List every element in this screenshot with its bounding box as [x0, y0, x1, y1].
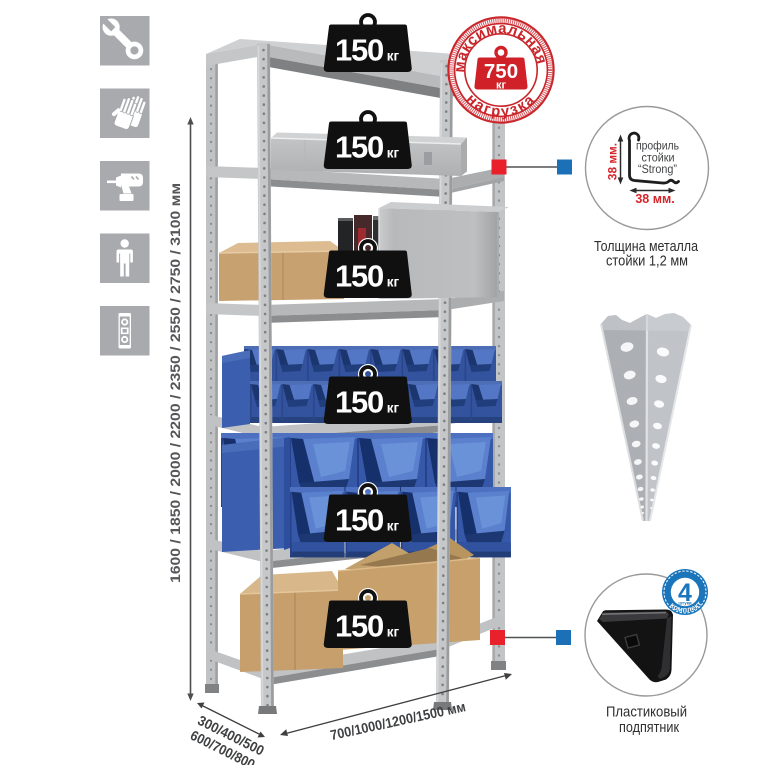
svg-text:“Strong”: “Strong”	[638, 164, 677, 176]
svg-text:кг: кг	[387, 519, 400, 534]
svg-text:150: 150	[335, 130, 383, 165]
svg-text:профиль: профиль	[636, 141, 679, 153]
svg-text:кг: кг	[387, 625, 400, 640]
svg-text:кг: кг	[496, 80, 507, 92]
svg-text:кг: кг	[387, 401, 400, 416]
svg-text:Пластиковый: Пластиковый	[606, 704, 687, 721]
svg-text:150: 150	[335, 33, 383, 68]
svg-text:1600 / 1850 / 2000 / 2200 / 23: 1600 / 1850 / 2000 / 2200 / 2350 / 2550 …	[168, 183, 183, 583]
svg-text:кг: кг	[387, 275, 400, 290]
svg-text:стойки: стойки	[642, 153, 675, 165]
svg-text:150: 150	[335, 259, 383, 294]
svg-text:150: 150	[335, 609, 383, 644]
svg-text:38 мм.: 38 мм.	[606, 143, 620, 180]
svg-text:150: 150	[335, 385, 383, 420]
svg-text:кг: кг	[387, 49, 400, 64]
svg-text:38 мм.: 38 мм.	[635, 192, 674, 206]
svg-text:подпятник: подпятник	[619, 719, 679, 736]
svg-text:150: 150	[335, 503, 383, 538]
svg-text:кг: кг	[387, 146, 400, 161]
svg-text:стойки 1,2 мм: стойки 1,2 мм	[606, 253, 688, 270]
